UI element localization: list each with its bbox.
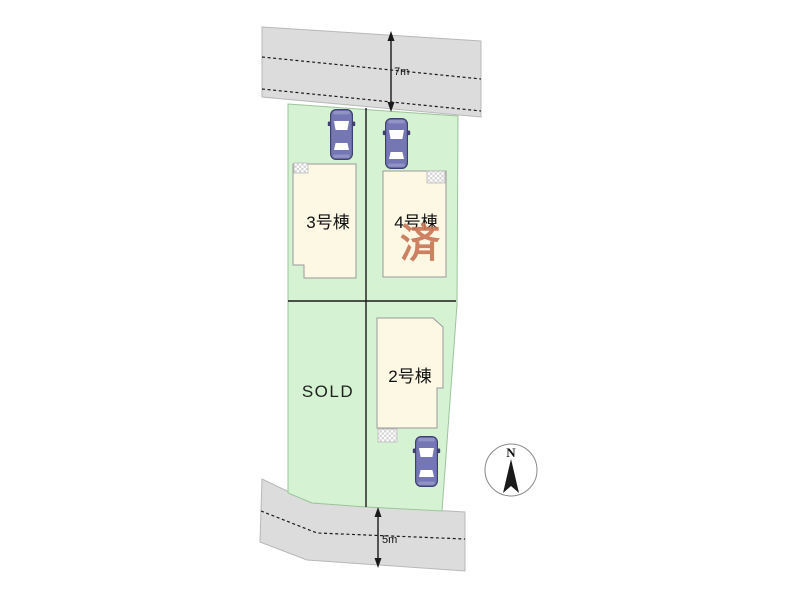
site-plan-canvas: 3号棟 4号棟 済 SOLD 2号棟 7m 5m N bbox=[0, 0, 800, 600]
car-icon-1 bbox=[328, 110, 355, 160]
road-top bbox=[262, 27, 481, 117]
sold-lot-label: SOLD bbox=[302, 382, 354, 401]
north-needle bbox=[503, 459, 519, 493]
north-label: N bbox=[506, 445, 516, 460]
house-3-label: 3号棟 bbox=[306, 213, 349, 232]
road-bottom-width-label: 5m bbox=[382, 534, 397, 546]
car-icon-2 bbox=[383, 119, 410, 169]
porch-hatch-icon-house2 bbox=[378, 429, 397, 442]
north-compass-icon: N bbox=[485, 444, 537, 496]
road-top-width-label: 7m bbox=[394, 66, 409, 78]
sold-stamp: 済 bbox=[400, 221, 441, 267]
car-icon-3 bbox=[413, 437, 440, 487]
porch-hatch-icon-house4 bbox=[427, 171, 445, 183]
house-2-label: 2号棟 bbox=[388, 367, 431, 386]
porch-hatch-icon-house3 bbox=[294, 163, 308, 173]
site-plan-page: 3号棟 4号棟 済 SOLD 2号棟 7m 5m N bbox=[0, 0, 800, 600]
